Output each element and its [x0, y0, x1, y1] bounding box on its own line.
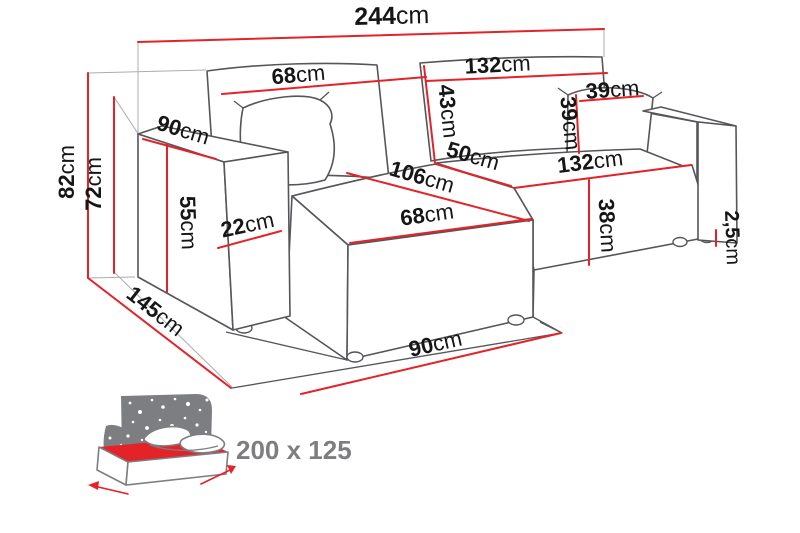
label-leg-height: 2,5cm: [720, 210, 744, 265]
label-back-left-width: 68cm: [270, 60, 326, 90]
label-back-right-width: 132cm: [464, 50, 531, 78]
label-seat-height: 38cm: [594, 198, 622, 253]
diagram-canvas: 244cm 68cm 132cm 43cm 39cm 39cm 90cm 82c…: [0, 0, 800, 533]
sleeping-area-size: 200 x 125: [236, 435, 352, 465]
label-total-height: 82cm: [54, 145, 79, 199]
dim-line-total-width: [138, 29, 604, 42]
label-armrest-height: 55cm: [175, 195, 202, 250]
furniture-dimension-diagram: 244cm 68cm 132cm 43cm 39cm 39cm 90cm 82c…: [0, 0, 800, 533]
left-armrest-front-face: [224, 152, 290, 330]
label-total-width: 244cm: [354, 1, 430, 31]
label-cushion-width: 39cm: [585, 75, 640, 104]
sofa-bed-storage-icon: [88, 394, 236, 494]
label-back-height: 72cm: [81, 157, 106, 211]
